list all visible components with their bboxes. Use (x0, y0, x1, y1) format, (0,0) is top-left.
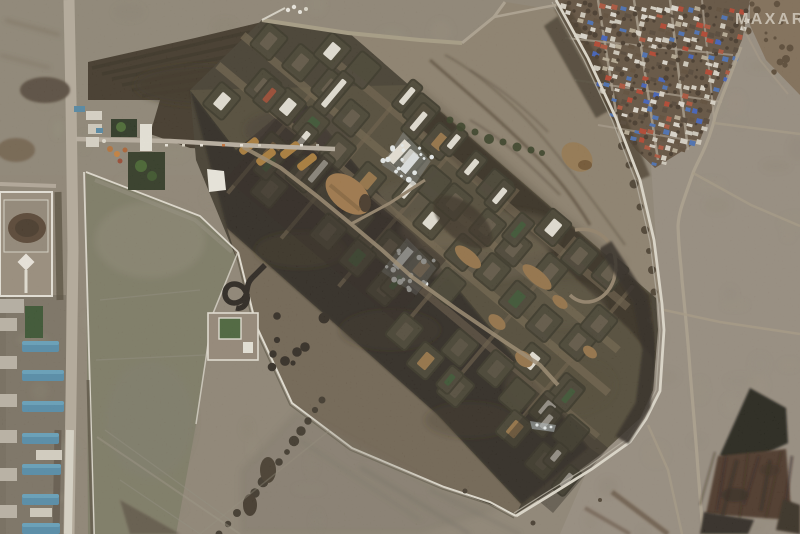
svg-text:MAXAR: MAXAR (735, 11, 800, 28)
